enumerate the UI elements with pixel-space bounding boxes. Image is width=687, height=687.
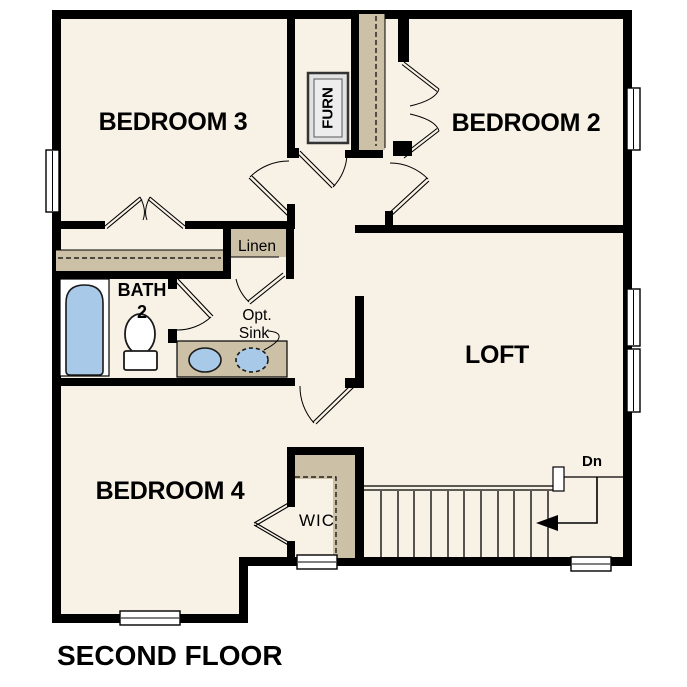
bath-label-line1: BATH xyxy=(118,280,167,300)
window-bedroom4-bottom xyxy=(120,611,180,625)
bathtub-icon xyxy=(66,285,103,375)
page-title: SECOND FLOOR xyxy=(57,640,283,671)
bedroom4-label: BEDROOM 4 xyxy=(96,477,245,505)
sink-icon xyxy=(189,348,221,372)
opt-sink-label-line2: Sink xyxy=(239,325,269,342)
window-stairs-bottom xyxy=(571,557,611,571)
stair-newel xyxy=(553,467,564,491)
bedroom3-label: BEDROOM 3 xyxy=(99,108,248,136)
toilet-tank-icon xyxy=(124,351,157,370)
stairs-down-label: Dn xyxy=(582,453,602,470)
bath-label-line2: 2 xyxy=(137,302,147,322)
window-bedroom2-right xyxy=(627,88,640,150)
opt-sink-label-line1: Opt. xyxy=(242,307,271,324)
bedroom3-closet xyxy=(56,250,223,271)
loft-label: LOFT xyxy=(465,341,529,369)
optional-sink-icon xyxy=(236,348,268,372)
window-loft-right-upper xyxy=(627,289,640,346)
window-bedroom3-left xyxy=(46,150,59,212)
floor-plan-canvas: BEDROOM 3 BEDROOM 2 BEDROOM 4 LOFT BATH … xyxy=(0,0,687,687)
bedroom2-label: BEDROOM 2 xyxy=(452,109,601,137)
floor-plan-page: BEDROOM 3 BEDROOM 2 BEDROOM 4 LOFT BATH … xyxy=(0,0,687,687)
window-loft-right-lower xyxy=(627,349,640,412)
furnace-label: FURN xyxy=(320,87,337,129)
window-wic-bottom xyxy=(297,555,337,569)
linen-label: Linen xyxy=(238,238,276,255)
wic-label: WIC xyxy=(299,511,335,530)
bedroom2-closet xyxy=(359,14,385,150)
